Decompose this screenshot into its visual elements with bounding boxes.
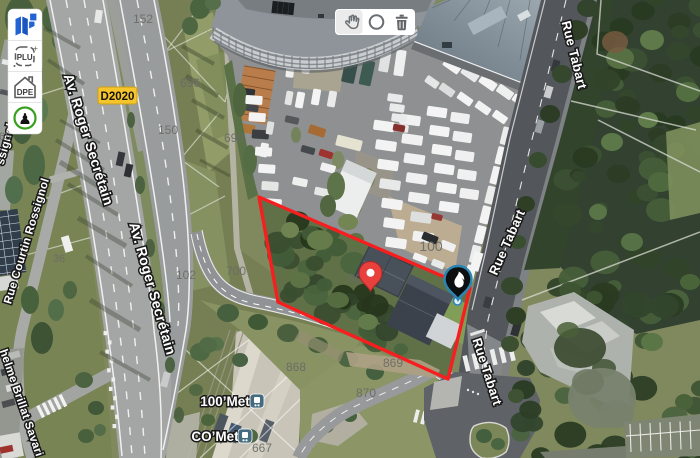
svg-text:100: 100 [419, 238, 443, 254]
svg-text:PLU: PLU [17, 53, 33, 62]
svg-text:36: 36 [53, 253, 65, 265]
svg-text:698: 698 [224, 131, 244, 145]
svg-text:700: 700 [226, 264, 246, 278]
svg-text:D2020: D2020 [101, 91, 135, 103]
svg-text:868: 868 [286, 360, 306, 374]
svg-text:♟: ♟ [18, 112, 31, 128]
svg-text:870: 870 [356, 386, 376, 400]
svg-text:150: 150 [158, 123, 178, 137]
svg-text:667: 667 [252, 441, 272, 455]
svg-text:CO’Met: CO’Met [191, 429, 239, 444]
svg-text:696: 696 [180, 76, 200, 90]
svg-text:102: 102 [176, 268, 196, 282]
svg-text:DPE: DPE [17, 88, 34, 97]
svg-text:+: + [33, 44, 38, 53]
svg-text:100’Met: 100’Met [200, 394, 250, 409]
svg-text:869: 869 [383, 356, 403, 370]
svg-text:152: 152 [133, 12, 153, 26]
